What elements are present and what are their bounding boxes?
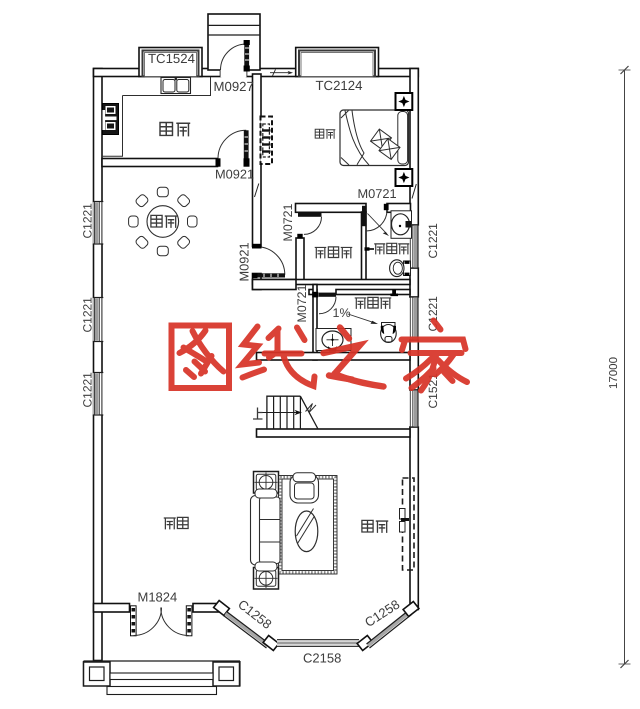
- svg-text:M0927: M0927: [214, 79, 254, 94]
- svg-text:M0721: M0721: [295, 285, 309, 323]
- svg-text:C1221: C1221: [81, 372, 95, 408]
- svg-text:C1221: C1221: [81, 297, 95, 333]
- svg-text:M0721: M0721: [358, 186, 397, 201]
- svg-text:M1824: M1824: [138, 590, 178, 605]
- svg-text:M0721: M0721: [281, 204, 295, 242]
- svg-text:M0921: M0921: [237, 242, 252, 281]
- svg-text:TC2124: TC2124: [316, 78, 363, 93]
- svg-text:M0921: M0921: [215, 167, 254, 182]
- svg-text:C2158: C2158: [303, 651, 341, 666]
- svg-text:TC1524: TC1524: [148, 51, 195, 66]
- svg-text:17000: 17000: [608, 357, 620, 389]
- svg-text:1%: 1%: [333, 306, 351, 320]
- svg-text:C1221: C1221: [426, 223, 440, 259]
- svg-text:C1221: C1221: [81, 203, 95, 239]
